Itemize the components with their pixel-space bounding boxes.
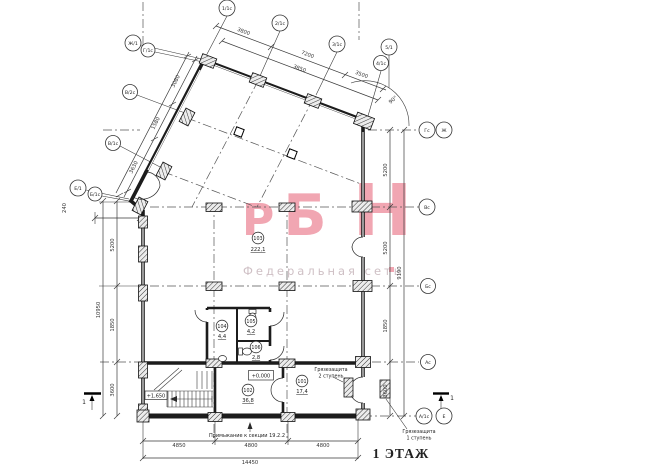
note-mud-guard-1-sub: 1 ступень <box>407 436 432 442</box>
axis-label: 4/1с <box>376 61 387 67</box>
dim-text: 4800 <box>244 443 257 449</box>
angle-dim-text: 90° <box>388 95 399 106</box>
door-opening <box>267 346 273 360</box>
axis-bubble: Ж <box>436 122 452 138</box>
door-opening <box>204 310 210 322</box>
dim-text: 3630 <box>128 160 139 174</box>
dim-text: 3800 <box>236 27 250 37</box>
toilet-icon <box>239 348 243 355</box>
axis-bubble: Вс <box>419 199 435 215</box>
drawing-title: 1 ЭТАЖ <box>373 446 430 461</box>
section-mark-left: 1 <box>82 394 101 411</box>
axis-bubble: Г/1с <box>141 43 155 57</box>
note-mud-guard-2-sub: 2 ступень <box>319 374 344 380</box>
level-value: +0,000 <box>252 374 271 380</box>
axis-bubble: Ас <box>421 355 436 370</box>
dim-text: 3080 <box>170 74 181 88</box>
room-number: 106 <box>251 345 260 351</box>
axis-label: Е <box>443 414 446 420</box>
room-label: 103222,1 <box>251 232 266 253</box>
door-opening <box>360 377 367 403</box>
dim-text: 5200 <box>110 238 116 251</box>
axis-bubble: 3/1с <box>329 36 345 52</box>
dim-text: 14450 <box>242 460 259 465</box>
room-number: 102 <box>243 388 252 394</box>
axis-label: 5/1 <box>385 45 393 51</box>
axis-bubble: Гс <box>419 122 435 138</box>
axis-bubble: 5/1 <box>381 39 397 55</box>
walls <box>131 60 367 416</box>
room-area: 4,2 <box>247 329 255 335</box>
room-number: 101 <box>297 379 306 385</box>
axis-bubble: А/1с <box>416 408 432 424</box>
axis-bubble: Е <box>436 408 452 424</box>
axis-bubble: 1/1с <box>219 0 235 16</box>
axis-label: 2/1с <box>275 21 286 27</box>
room-label: 10236,8 <box>242 384 254 404</box>
room-label: 1062,8 <box>250 341 262 361</box>
level-marks: +0,000 +1,650 <box>145 371 274 400</box>
section-mark-right: 1 <box>433 394 454 411</box>
dim-text: 5200 <box>383 241 389 254</box>
axis-bubble: Б/1с <box>88 187 102 201</box>
axis-label: Ж/1 <box>128 41 138 47</box>
axis-label: Б/1с <box>90 192 101 198</box>
level-value: +1,650 <box>147 394 166 400</box>
section-mark-label: 1 <box>450 395 454 402</box>
dim-text: 3600 <box>110 383 116 396</box>
dim-text: 1580 <box>150 116 161 130</box>
axis-label: Гс <box>424 128 430 134</box>
axis-bubble: В/2с <box>123 85 138 100</box>
axis-bubble: В/1с <box>106 136 121 151</box>
dim-text: 240 <box>62 203 68 213</box>
axis-label: Е/1 <box>74 186 82 192</box>
axis-bubble: Ж/1 <box>125 35 141 51</box>
room-label: 10117,4 <box>296 375 308 395</box>
dim-text: 1850 <box>383 319 389 332</box>
sink-icon <box>219 356 227 362</box>
note-mud-guard-1: Грязезащита <box>402 429 435 435</box>
axis-label: В/1с <box>108 141 119 147</box>
dim-text: 3600 <box>383 384 389 397</box>
notes: Грязезащита 2 ступень Грязезащита 1 ступ… <box>209 367 436 442</box>
room-area: 4,4 <box>218 334 227 340</box>
room-number: 104 <box>217 324 226 330</box>
axis-label: 1/1с <box>222 6 233 12</box>
dim-text: 10950 <box>96 302 102 319</box>
dim-text: 9190 <box>397 266 403 279</box>
room-area: 222,1 <box>251 247 266 253</box>
column <box>287 149 297 159</box>
axis-bubble: 4/1с <box>374 56 389 71</box>
stair-direction-arrow <box>170 396 177 402</box>
axis-bubble: 2/1с <box>272 15 288 31</box>
floor-plan-drawing: 1 1 1/1с 2/1с 3/1с 5/1 4/1с Ж/1 Г/1с В/2… <box>0 0 652 465</box>
mud-mat-inner <box>344 378 353 397</box>
room-number: 103 <box>253 236 262 242</box>
room-area: 17,4 <box>296 389 308 395</box>
axis-bubble: Е/1 <box>70 180 86 196</box>
dim-text: 4800 <box>316 443 329 449</box>
door-opening <box>360 237 367 257</box>
dim-text: 4850 <box>172 443 185 449</box>
room-number: 105 <box>246 319 255 325</box>
note-adjoining-section: Примыкание к секции 19.2.2 <box>209 433 285 439</box>
axis-bubble: Бс <box>421 279 436 294</box>
axis-label: 3/1с <box>332 42 343 48</box>
section-mark-label: 1 <box>82 399 86 406</box>
door-opening <box>280 378 286 402</box>
room-area: 36,8 <box>242 398 254 404</box>
dim-text: 3850 <box>292 64 306 74</box>
axis-label: Г/1с <box>143 48 153 54</box>
floor-plan-page: Р Б Н Федеральная сеть <box>0 0 652 465</box>
room-area: 2,8 <box>252 355 260 361</box>
note-mud-guard-2: Грязезащита <box>314 367 347 373</box>
dim-text: 5200 <box>383 163 389 176</box>
note-leader-arrow <box>248 422 253 429</box>
section-arrow-icon <box>90 395 95 401</box>
axis-label: Вс <box>424 205 430 211</box>
staircase <box>154 368 213 407</box>
room-label: 1054,2 <box>245 315 257 335</box>
column <box>234 127 244 137</box>
door-opening <box>267 312 273 326</box>
axis-bubbles: 1/1с 2/1с 3/1с 5/1 4/1с Ж/1 Г/1с В/2с В/… <box>70 0 452 424</box>
axis-label: Ж <box>441 128 446 134</box>
axis-label: Ас <box>425 360 431 366</box>
axis-label: Бс <box>425 284 431 290</box>
dim-text: 1850 <box>110 318 116 331</box>
section-arrow-icon <box>439 395 444 401</box>
axis-label: А/1с <box>419 414 430 420</box>
room-label: 1044,4 <box>216 320 228 340</box>
axis-label: В/2с <box>125 90 136 96</box>
